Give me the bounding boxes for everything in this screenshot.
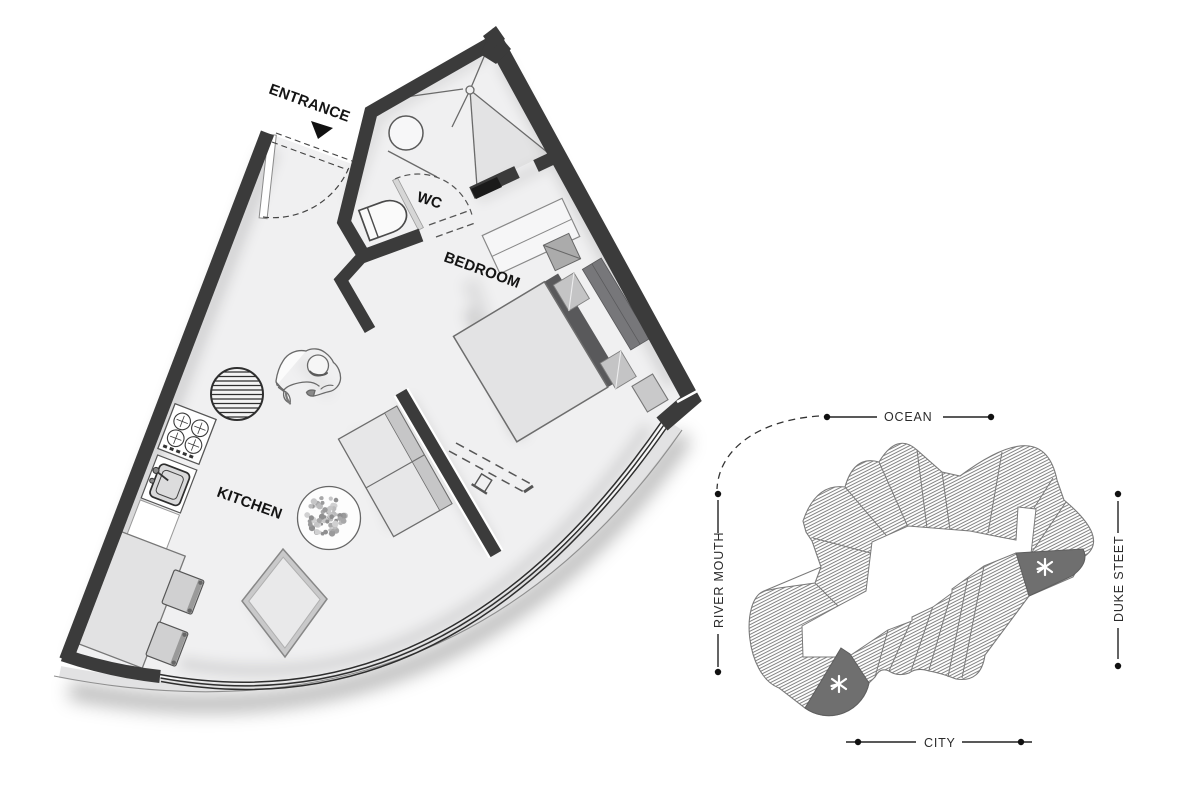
svg-text:OCEAN: OCEAN: [884, 410, 932, 424]
svg-text:DUKE STEET: DUKE STEET: [1112, 536, 1126, 623]
svg-text:RIVER MOUTH: RIVER MOUTH: [712, 532, 726, 628]
svg-text:ENTRANCE: ENTRANCE: [267, 81, 353, 126]
svg-text:CITY: CITY: [924, 736, 956, 750]
